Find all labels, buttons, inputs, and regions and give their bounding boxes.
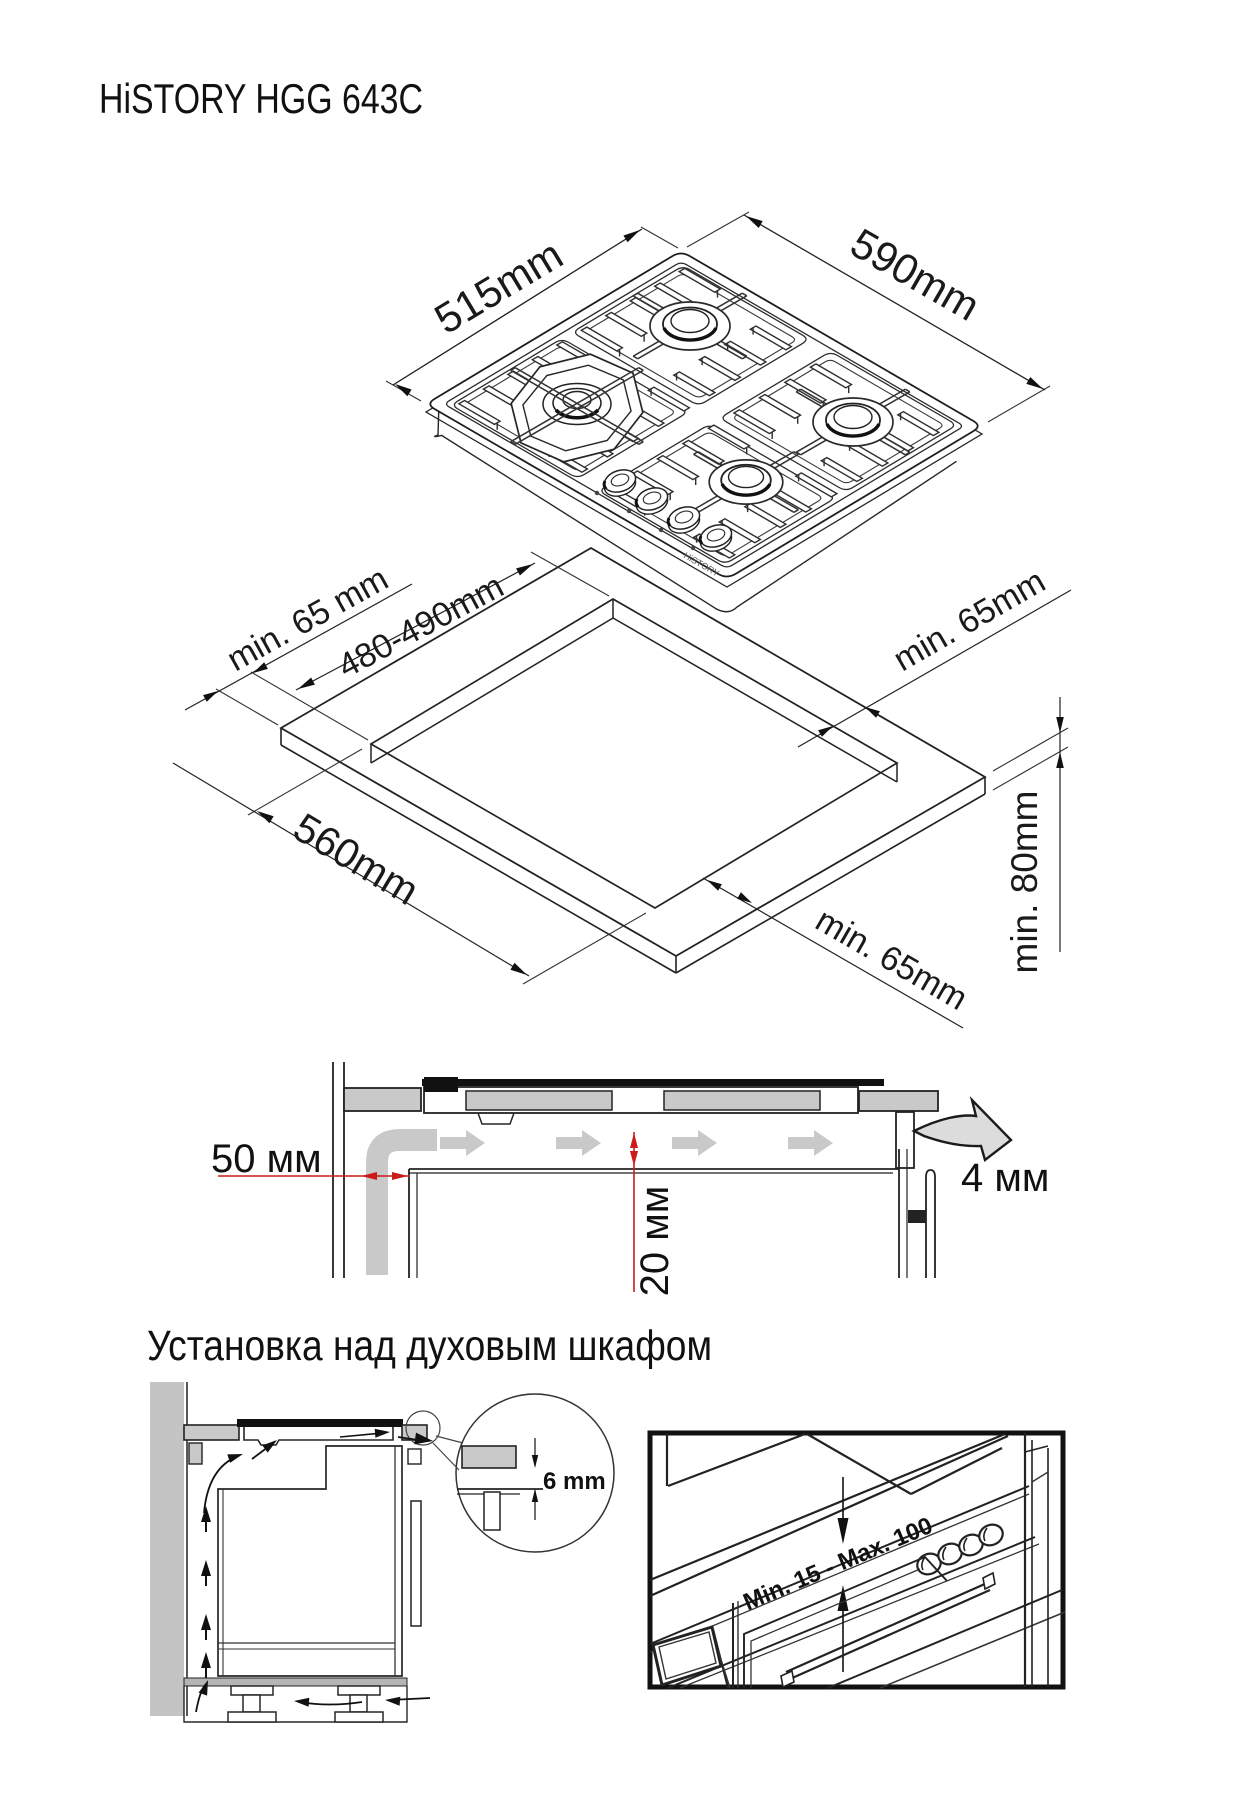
svg-text:4 мм: 4 мм [961, 1156, 1049, 1200]
svg-text:HiSTORY HGG 643C: HiSTORY HGG 643C [99, 75, 423, 122]
svg-text:Установка над духовым шкафом: Установка над духовым шкафом [147, 1322, 712, 1370]
svg-text:50 мм: 50 мм [211, 1137, 322, 1181]
svg-text:6 mm: 6 mm [543, 1468, 606, 1495]
svg-text:min. 80mm: min. 80mm [1004, 791, 1045, 974]
svg-text:20 мм: 20 мм [633, 1186, 677, 1297]
